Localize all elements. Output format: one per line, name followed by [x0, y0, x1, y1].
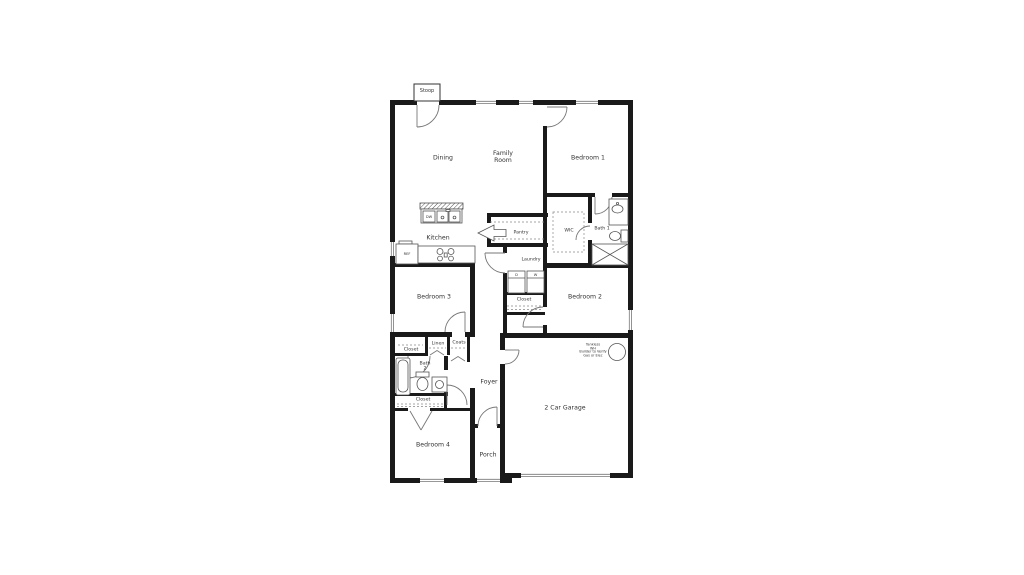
front-door [478, 407, 497, 426]
wall-exterior-right [628, 100, 633, 478]
bedroom2-door [523, 307, 543, 327]
bath1-vanity [609, 199, 628, 225]
wall-under-bedroom1-a [547, 193, 595, 197]
wall-garage-left-b [500, 364, 505, 478]
laundry-door [485, 253, 505, 273]
floor-plan-canvas: Stoop Dining Family Room Bedroom 1 Kitch… [0, 0, 1024, 575]
bath1-toilet [610, 230, 629, 242]
wall-pantry-bottom [487, 243, 548, 247]
label-porch: Porch [479, 451, 496, 458]
label-laundry: Laundry [521, 257, 540, 262]
wall-pantry-top [487, 213, 548, 217]
wall-bath2-right-a [444, 356, 448, 370]
hall-closet-door [447, 385, 467, 405]
wall-laundry-left-stub [503, 247, 507, 253]
label-wic: WIC [564, 228, 573, 233]
stoop-door [417, 105, 439, 127]
bedroom4-door [410, 411, 432, 430]
kitchen-faucet [446, 210, 450, 212]
pantry-arrow [478, 225, 506, 241]
wall-laundry-left [503, 273, 507, 333]
wic-door [576, 226, 590, 240]
wall-foyer-porch-a [470, 424, 478, 428]
wall-wic-bath1-b [588, 240, 592, 267]
coats-door [451, 357, 465, 362]
label-bath1: Bath 1 [594, 226, 609, 231]
label-bath2: Bath 2 [420, 362, 431, 373]
wall-garage-left-a [500, 338, 505, 350]
wall-wic-bath1-a [588, 197, 592, 223]
linen-door [430, 351, 444, 356]
label-bedroom2: Bedroom 2 [568, 293, 602, 300]
label-dryer: D [515, 272, 518, 276]
kitchen-island [420, 203, 463, 223]
label-water-heater-note: Tankless WH Builder to Verify Gas or Ele… [579, 344, 606, 359]
label-upper-closet: Closet [404, 347, 419, 352]
wall-bedroom4-top-b [430, 408, 470, 411]
bedroom3-door [445, 312, 465, 332]
wall-bedroom3-bottom [390, 332, 452, 337]
label-bedroom3: Bedroom 3 [417, 293, 451, 300]
label-foyer: Foyer [480, 378, 497, 385]
label-dining: Dining [433, 154, 453, 161]
wall-linen-coats-divider [447, 337, 450, 355]
label-pantry: Pantry [514, 230, 529, 235]
stove-counter [418, 246, 475, 263]
bath2-toilet [416, 372, 429, 391]
label-coats: Coats [452, 340, 465, 345]
label-bedroom1: Bedroom 1 [571, 154, 605, 161]
wall-upper-closet-bottom [395, 353, 428, 356]
wall-bedroom1-left [543, 126, 547, 195]
label-bedroom4: Bedroom 4 [416, 441, 450, 448]
bedroom1-door [547, 107, 567, 127]
label-hall-closet: Closet [517, 297, 532, 302]
bath2-sink [432, 377, 447, 392]
wall-coats-right [467, 337, 470, 362]
wall-garage-bottom-stub-left [505, 473, 521, 478]
water-heater [609, 344, 626, 361]
label-lower-closet: Closet [416, 397, 431, 402]
label-stoop: Stoop [420, 89, 434, 95]
wall-garage-bottom-stub-right [610, 473, 633, 478]
wall-bedroom4-right [470, 388, 475, 478]
wall-under-bedroom1-b [612, 193, 633, 197]
bath1-shower [592, 244, 628, 265]
wall-hall-closet-bottom [505, 312, 545, 315]
garage-entry-door [505, 350, 519, 364]
porch-opening [477, 478, 500, 483]
label-family-room: Family Room [493, 150, 513, 164]
wall-bedroom4-top-a [395, 408, 408, 411]
breakfast-bar [420, 203, 463, 209]
wall-bedroom3-right [470, 267, 475, 332]
garage-door-opening [521, 473, 610, 478]
label-garage: 2 Car Garage [544, 404, 585, 411]
wall-garage-top [500, 333, 633, 338]
wall-closet-linen-divider [425, 337, 428, 355]
floor-plan-drawing [0, 0, 1024, 575]
label-dishwasher: DW [426, 214, 432, 218]
wall-exterior-left [390, 100, 395, 483]
label-linen: Linen [432, 341, 445, 346]
label-kitchen: Kitchen [426, 234, 449, 241]
bath2-tub [396, 358, 410, 395]
label-washer: W [534, 272, 538, 276]
wall-bedroom3-bottom-stub [465, 332, 475, 337]
stove-knob [444, 253, 447, 257]
label-refrigerator: REF [404, 252, 411, 256]
